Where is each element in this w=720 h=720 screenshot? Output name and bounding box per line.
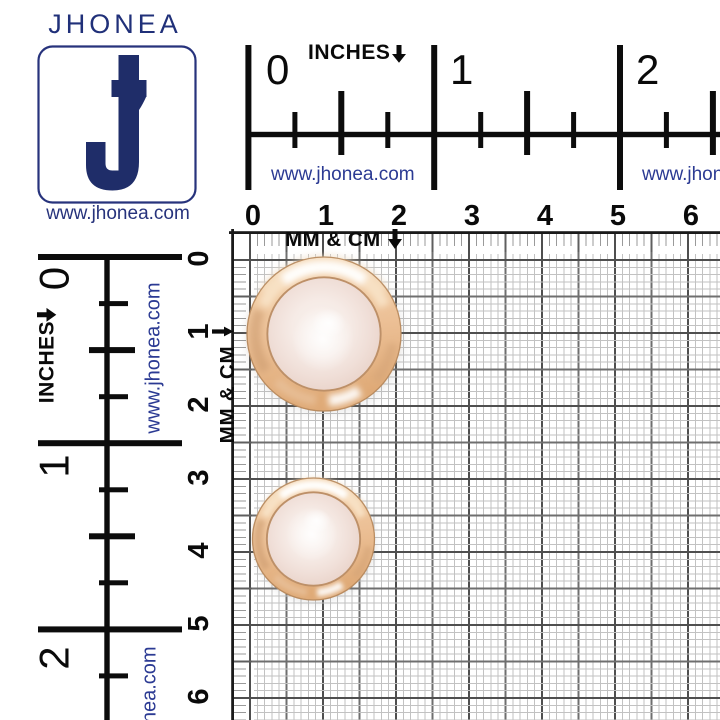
svg-text:0: 0 [31,267,78,290]
svg-text:3: 3 [464,200,480,232]
svg-text:6: 6 [183,688,215,704]
svg-text:2: 2 [31,646,78,669]
svg-text:3: 3 [183,469,215,485]
svg-text:5: 5 [610,200,626,232]
svg-text:www.jhonea.com: www.jhonea.com [45,203,190,224]
svg-text:www.jhonea.com: www.jhonea.com [641,164,720,185]
svg-text:INCHES: INCHES [308,41,390,64]
svg-text:4: 4 [183,542,215,558]
svg-text:www.jhonea.com: www.jhonea.com [138,646,160,720]
svg-text:5: 5 [183,615,215,631]
svg-text:www.jhonea.com: www.jhonea.com [270,164,415,185]
svg-text:MM & CM: MM & CM [216,346,239,444]
svg-text:2: 2 [391,200,407,232]
svg-text:JHONEA: JHONEA [48,9,182,39]
svg-text:0: 0 [245,200,261,232]
svg-text:1: 1 [31,454,78,477]
svg-text:www.jhonea.com: www.jhonea.com [142,282,164,434]
svg-text:0: 0 [183,250,215,266]
svg-text:4: 4 [537,200,553,232]
svg-text:0: 0 [266,46,289,93]
svg-text:INCHES: INCHES [36,321,59,403]
svg-text:1: 1 [450,46,473,93]
svg-text:2: 2 [636,46,659,93]
svg-text:MM & CM: MM & CM [285,228,381,251]
svg-text:1: 1 [183,323,215,339]
svg-text:2: 2 [183,396,215,412]
svg-text:6: 6 [683,200,699,232]
